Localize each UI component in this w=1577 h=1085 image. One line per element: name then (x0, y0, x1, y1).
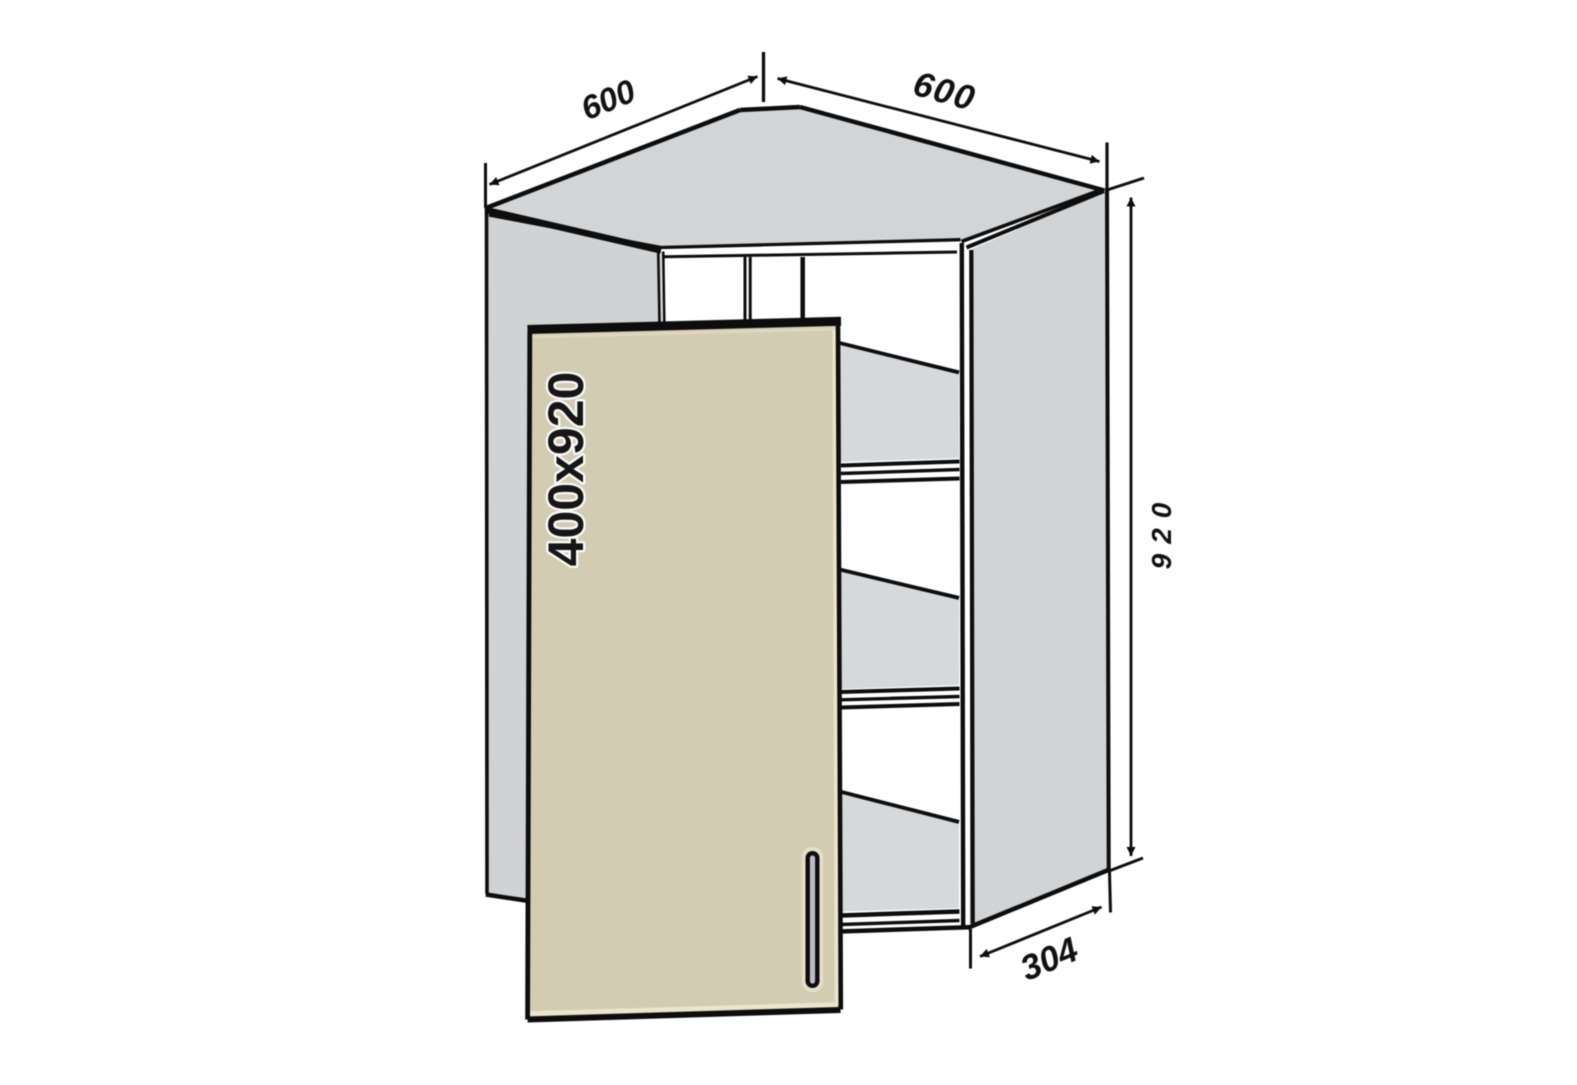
svg-text:920: 920 (1146, 493, 1177, 570)
svg-text:400x920: 400x920 (538, 372, 594, 567)
